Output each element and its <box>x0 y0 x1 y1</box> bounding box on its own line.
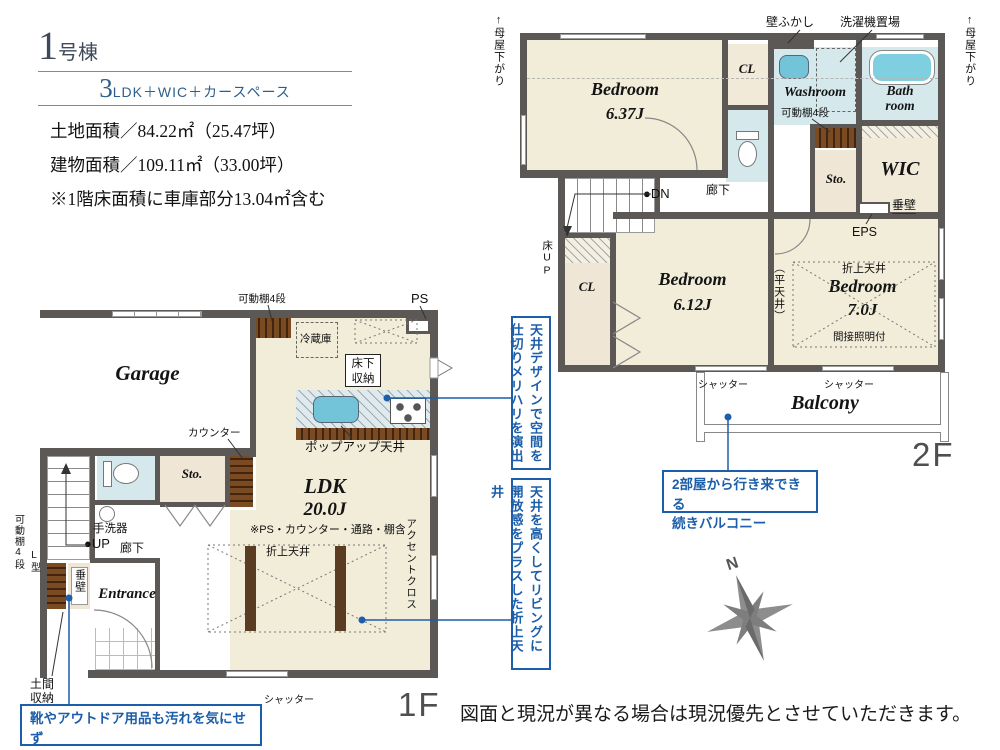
moyasagari-right-label: ↑母屋下がり <box>963 14 976 119</box>
entrance-label: Entrance <box>96 586 158 603</box>
lgata-label: L型 <box>28 550 40 580</box>
shelf-1f-left <box>46 563 66 609</box>
shelf-2f <box>814 128 856 148</box>
plan-number: 3 <box>99 73 113 103</box>
sink-2f <box>779 55 809 79</box>
header-block: 1号棟 3LDK＋WIC＋カースペース 土地面積／84.22㎡（25.47坪） … <box>38 22 352 211</box>
up-label: ●UP <box>84 537 110 552</box>
ldk-note: ※PS・カウンター・通路・棚含 <box>250 524 406 537</box>
plan-suffix: LDK＋WIC＋カースペース <box>113 84 291 100</box>
shutter1-label: シャッター <box>698 380 748 392</box>
bedroom3-name: Bedroom <box>800 277 925 297</box>
header-divider-2 <box>38 105 352 106</box>
cl1-label: CL <box>728 62 766 76</box>
sto-2f-label: Sto. <box>818 172 854 186</box>
bedroom1-name: Bedroom <box>545 80 705 100</box>
entrance-porch <box>95 628 157 670</box>
yukaup-area <box>564 238 610 263</box>
compass-icon: N <box>687 542 807 674</box>
callout-ceiling-height: 天井を高くしてリビングに 開放感をプラスした折上天井 <box>511 478 551 670</box>
oriage-2f-label: 折上天井 <box>842 263 886 276</box>
hand-wash-basin <box>99 506 115 522</box>
toilet-2f-bowl <box>738 141 757 167</box>
yukashita-box: 床下 収納 <box>345 354 381 387</box>
counter-label: カウンター <box>188 427 241 439</box>
ldk-name: LDK <box>285 475 365 498</box>
oriage-1f-label: 折上天井 <box>266 546 310 559</box>
callout-ceiling-design: 天井デザインで空間を 仕切りメリハリを演出 <box>511 316 551 470</box>
ps-label: PS <box>411 292 428 307</box>
tarekabe-2f-label: 垂壁 <box>892 199 916 214</box>
tarekabe-1f-label: 垂壁 <box>71 567 88 605</box>
toilet-1f-bowl <box>113 463 139 484</box>
stove <box>390 398 426 424</box>
toilet-1f-tank <box>103 461 112 487</box>
building-area: 建物面積／109.11㎡（33.00坪） <box>50 152 352 177</box>
kansetsu-label: 間接照明付 <box>833 331 886 343</box>
sto-1f-label: Sto. <box>170 467 214 481</box>
up-arrow-icon: ↑ <box>493 14 505 27</box>
shutter-window-2 <box>822 366 894 371</box>
moyasagari-line <box>527 78 938 79</box>
garage-label: Garage <box>100 362 195 385</box>
kabefukashi-wall <box>770 40 814 49</box>
garage-door-opening <box>112 311 202 317</box>
bedroom2-size: 6.12J <box>625 296 760 315</box>
doma-label: 土間収納 <box>30 678 54 706</box>
yukaup-label: 床UP <box>541 240 553 290</box>
plan-type: 3LDK＋WIC＋カースペース <box>38 73 352 104</box>
balcony-label: Balcony <box>770 392 880 414</box>
header-divider-1 <box>38 71 352 72</box>
toilet-2f-tank <box>736 131 759 140</box>
washroom-label: Washroom <box>776 85 854 100</box>
compass-north-label: N <box>724 554 740 574</box>
eps-label: EPS <box>852 225 877 239</box>
up-arrow-icon: ↑ <box>964 14 976 27</box>
shutter-window-1f <box>226 671 288 677</box>
washing-machine-area <box>816 48 856 112</box>
ldk-size: 20.0J <box>285 500 365 521</box>
ps-shaft <box>406 318 431 334</box>
eps-shaft <box>858 202 890 215</box>
building-number: 1 <box>38 23 58 68</box>
kadoudana-left-label: 可動棚4段 <box>12 514 24 580</box>
room-bedroom2 <box>616 219 768 365</box>
shutter-1f-label: シャッター <box>264 695 314 707</box>
kabefukashi-label: 壁ふかし <box>766 16 814 30</box>
rouka-1f-label: 廊下 <box>120 542 144 556</box>
callout-balcony: 2部屋から行き来できる 続きバルコニー <box>662 470 818 513</box>
hiratenjou-label: （平天井） <box>772 262 785 342</box>
callout-entrance: 靴やアウトドア用品も汚れを気にせず 収納でき玄関スッキリ <box>20 704 262 746</box>
floor2-label: 2F <box>912 436 955 474</box>
shutter-window-1 <box>695 366 767 371</box>
tearai-label: 手洗器 <box>93 523 128 536</box>
accent-cloth-label: アクセントクロス <box>405 518 417 613</box>
wic-label: WIC <box>870 158 930 180</box>
sentakuki-label: 洗濯機置場 <box>840 16 900 30</box>
bathroom-label: Bathroom <box>866 84 934 114</box>
popup-label: ポップアップ天井 <box>305 440 405 454</box>
kadoudana-1f-top-label: 可動棚4段 <box>238 293 286 305</box>
moyasagari-left-label: ↑母屋下がり <box>492 14 505 119</box>
land-area: 土地面積／84.22㎡（25.47坪） <box>50 118 352 143</box>
reizouko-label: 冷蔵庫 <box>300 333 332 345</box>
building-suffix: 号棟 <box>58 42 98 64</box>
stairs-2f <box>564 178 655 233</box>
disclaimer-text: 図面と現況が異なる場合は現況優先とさせていただきます。 <box>460 699 971 726</box>
shutter2-label: シャッター <box>824 380 874 392</box>
cl2-label: CL <box>568 280 606 294</box>
shelf-1f-top <box>253 318 291 338</box>
bedroom3-size: 7.0J <box>800 301 925 320</box>
bedroom1-size: 6.37J <box>545 105 705 124</box>
floorplan-page: 1号棟 3LDK＋WIC＋カースペース 土地面積／84.22㎡（25.47坪） … <box>0 0 1000 750</box>
bathtub <box>870 51 934 84</box>
counter-1f <box>230 455 253 507</box>
kadoudana-2f-label: 可動棚4段 <box>781 107 829 119</box>
dn-label: ●DN <box>643 187 670 202</box>
balcony-post-right <box>940 372 949 442</box>
floor1-label: 1F <box>398 686 441 724</box>
bedroom2-name: Bedroom <box>625 270 760 290</box>
building-title: 1号棟 <box>38 22 352 69</box>
area-note: ※1階床面積に車庫部分13.04㎡含む <box>50 186 352 211</box>
wic-hanger-hatch <box>862 126 938 138</box>
rouka-2f-label: 廊下 <box>706 184 730 198</box>
kitchen-front-counter <box>296 428 432 440</box>
balcony-rail <box>704 424 941 433</box>
kitchen-sink <box>313 396 359 423</box>
